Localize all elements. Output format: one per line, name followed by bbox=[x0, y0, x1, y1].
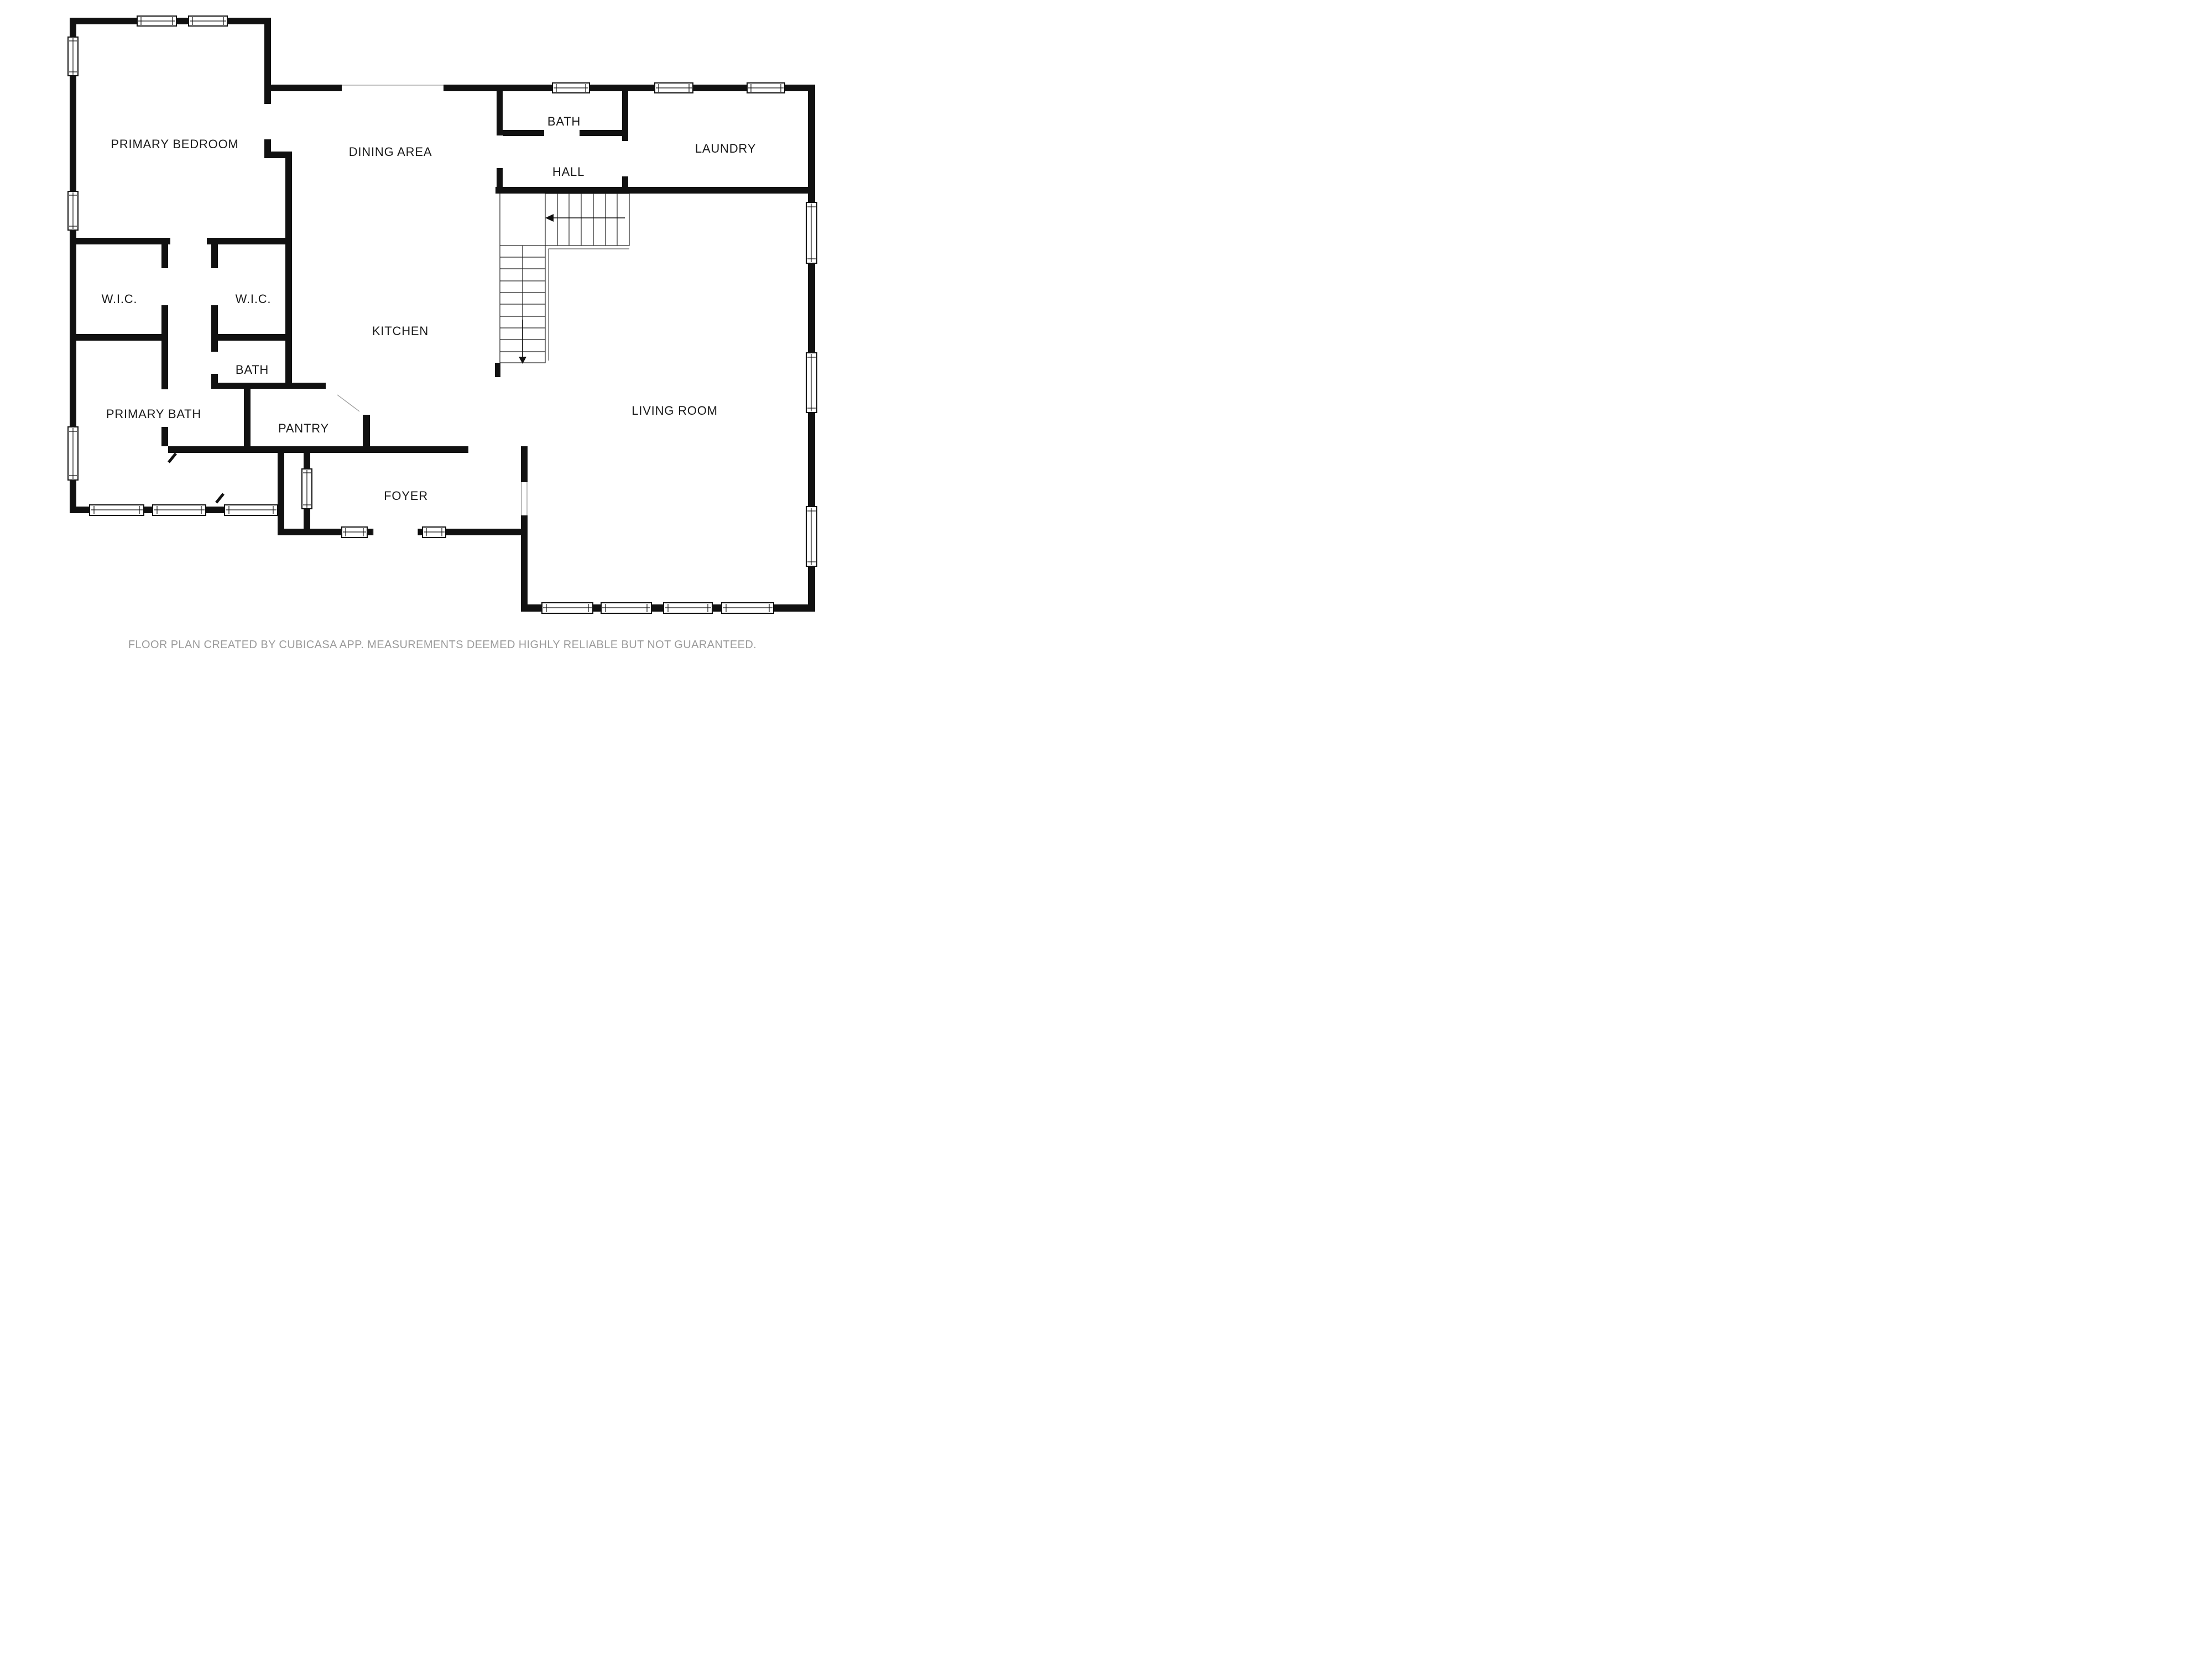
window bbox=[302, 469, 312, 509]
room-label-hall: HALL bbox=[552, 165, 585, 179]
door-opening bbox=[544, 129, 580, 137]
window bbox=[806, 507, 817, 566]
room-label-primary-bath: PRIMARY BATH bbox=[106, 407, 201, 421]
wall bbox=[244, 389, 251, 453]
wall bbox=[278, 453, 284, 535]
stair-inner-edge bbox=[549, 249, 629, 361]
door-opening bbox=[170, 237, 207, 245]
window bbox=[601, 603, 651, 613]
room-label-bath-upper: BATH bbox=[547, 114, 581, 128]
front-door-opening bbox=[373, 528, 418, 536]
door-opening bbox=[496, 135, 503, 168]
window bbox=[655, 83, 693, 93]
window bbox=[153, 505, 206, 515]
walls bbox=[70, 18, 815, 612]
floor-plan-canvas: PRIMARY BEDROOM DINING AREA BATH HALL LA… bbox=[0, 0, 885, 664]
window bbox=[722, 603, 774, 613]
door-leaf-tick bbox=[216, 494, 223, 503]
room-label-kitchen: KITCHEN bbox=[372, 324, 429, 338]
window bbox=[664, 603, 712, 613]
wall-chamfer bbox=[326, 386, 338, 396]
window bbox=[137, 16, 176, 26]
wall bbox=[495, 363, 500, 377]
room-label-wic-left: W.I.C. bbox=[102, 292, 138, 306]
room-label-bath-middle: BATH bbox=[236, 363, 269, 377]
room-label-living-room: LIVING ROOM bbox=[632, 404, 718, 418]
window bbox=[422, 527, 446, 538]
window bbox=[342, 527, 367, 538]
window bbox=[552, 83, 589, 93]
wall bbox=[495, 187, 815, 194]
windows bbox=[68, 16, 817, 613]
door-opening bbox=[161, 268, 169, 305]
window bbox=[68, 191, 78, 230]
window bbox=[747, 83, 785, 93]
window bbox=[806, 353, 817, 413]
wall bbox=[285, 152, 292, 389]
window bbox=[542, 603, 593, 613]
wall bbox=[168, 446, 468, 453]
room-label-foyer: FOYER bbox=[384, 489, 428, 503]
stair-upper-run bbox=[545, 194, 629, 246]
room-label-laundry: LAUNDRY bbox=[695, 142, 756, 155]
door-opening bbox=[622, 141, 629, 176]
floor-plan-page: PRIMARY BEDROOM DINING AREA BATH HALL LA… bbox=[0, 0, 885, 664]
wall bbox=[211, 383, 326, 389]
room-label-pantry: PANTRY bbox=[278, 421, 329, 435]
room-label-wic-right: W.I.C. bbox=[236, 292, 272, 306]
footer-disclaimer: FLOOR PLAN CREATED BY CUBICASA APP. MEAS… bbox=[128, 639, 757, 651]
door-opening bbox=[264, 104, 272, 139]
window bbox=[68, 37, 78, 76]
door-opening bbox=[211, 268, 218, 305]
window bbox=[90, 505, 144, 515]
door-opening bbox=[211, 352, 218, 374]
door-leaf-tick bbox=[169, 453, 176, 462]
stair-arrowhead-left-icon bbox=[545, 214, 554, 222]
wall bbox=[211, 334, 292, 341]
room-labels: PRIMARY BEDROOM DINING AREA BATH HALL LA… bbox=[102, 114, 757, 503]
room-label-primary-bedroom: PRIMARY BEDROOM bbox=[111, 137, 238, 151]
wall bbox=[70, 334, 168, 341]
staircase bbox=[500, 194, 629, 364]
window bbox=[806, 202, 817, 263]
room-label-dining-area: DINING AREA bbox=[349, 145, 432, 159]
window bbox=[189, 16, 227, 26]
opening-line bbox=[337, 395, 359, 411]
window bbox=[68, 427, 78, 480]
window bbox=[225, 505, 278, 515]
